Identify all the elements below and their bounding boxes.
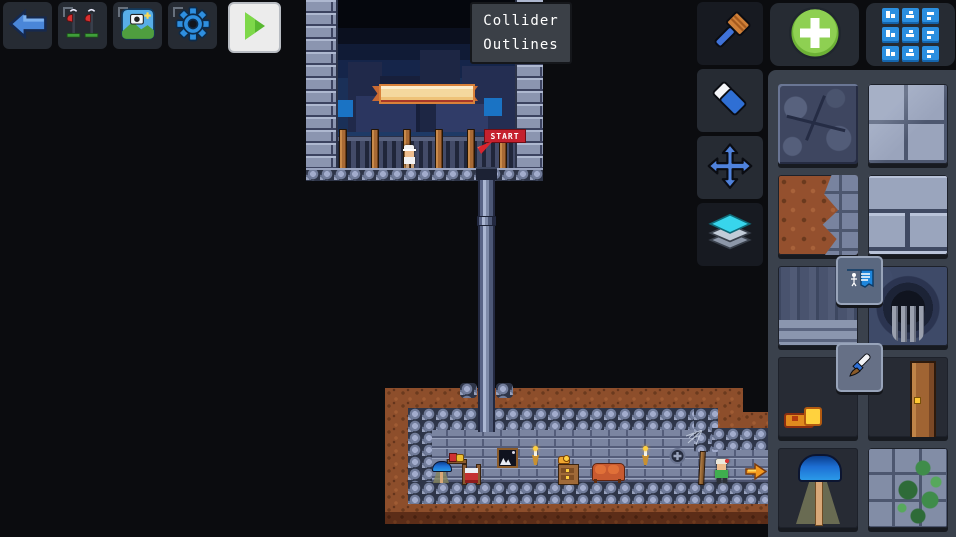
floor-socket [476,167,497,180]
play-button[interactable] [228,2,281,53]
sign-icon [845,267,875,295]
player-character[interactable] [403,145,416,168]
fence-post [339,129,347,169]
eraser-icon [708,77,752,125]
tooltip-collider-outlines: Collider Outlines [470,2,572,64]
pipe-collar-left [460,383,477,398]
shelf[interactable] [447,452,465,464]
tooltip-line1: Collider [483,9,558,33]
fence-post [467,129,475,169]
upper-room-left-wall [306,0,338,168]
fence-post [371,129,379,169]
shield-crest[interactable] [669,448,686,464]
start-label: START [490,132,519,141]
eraser-tool[interactable] [697,69,763,132]
plus-icon [788,6,842,64]
flags-icon [65,8,101,44]
play-icon [242,11,268,45]
palette-tile-dirt-stone[interactable] [778,175,858,255]
candle-sconce[interactable] [639,446,652,465]
fence-post [435,129,443,169]
pipe-coupling [477,216,496,226]
gear-icon [175,6,211,46]
npc-character[interactable] [714,459,729,483]
layers-tool[interactable] [697,203,763,266]
back-button[interactable] [3,2,52,49]
room-ceiling [408,408,708,430]
room-floor [408,482,768,504]
paint-brush-icon [708,10,752,58]
background-button[interactable] [113,2,162,49]
duck[interactable] [558,455,570,464]
sign-decal-badge[interactable] [836,256,883,305]
underground-dirt-border [385,512,768,524]
candle-sconce[interactable] [529,446,542,465]
palette-tile-stone-bricks[interactable] [868,175,948,255]
pipe-collar-right [496,383,513,398]
lamp[interactable] [430,461,452,483]
lamp-sprite [794,454,842,524]
move-tool[interactable] [697,136,763,199]
tile-categories-button[interactable] [866,3,955,66]
level-canvas[interactable]: START [0,0,768,537]
palette-tile-cracked-stone[interactable] [778,84,858,164]
palette-tile-lamp[interactable] [778,448,858,528]
start-flag[interactable]: START [484,129,526,143]
add-tile-button[interactable] [770,3,859,66]
skyline-building [436,104,488,132]
picture-frame[interactable] [497,448,518,468]
exit-arrow[interactable] [745,462,767,481]
tile-grid-icon [882,8,939,62]
underground-dirt-scallops [385,524,768,532]
small-brush-icon [845,351,875,385]
palette-tile-vine-wall[interactable] [868,448,948,528]
level-editor: START [0,0,956,537]
banner [372,84,478,102]
scene-camera-icon [121,8,155,44]
spider-web-icon [686,430,702,445]
brush-tool[interactable] [697,2,763,65]
layers-icon [707,212,753,258]
skyline-window [484,98,502,116]
torch-sprite [784,405,824,427]
palette-tile-stone-blocks[interactable] [868,84,948,164]
upper-room-floor [306,168,543,181]
room-ceiling-right [712,428,768,450]
bed[interactable] [462,464,481,483]
move-icon [707,143,753,193]
paint-decal-badge[interactable] [836,343,883,392]
back-arrow-icon [9,9,47,43]
tile-palette [768,70,956,537]
levels-button[interactable] [58,2,107,49]
settings-button[interactable] [168,2,217,49]
banner-body [379,84,475,104]
skyline-window [338,100,353,117]
door-sprite [910,361,936,437]
dresser[interactable] [558,464,579,485]
tooltip-line2: Outlines [483,33,558,57]
couch[interactable] [592,463,623,483]
